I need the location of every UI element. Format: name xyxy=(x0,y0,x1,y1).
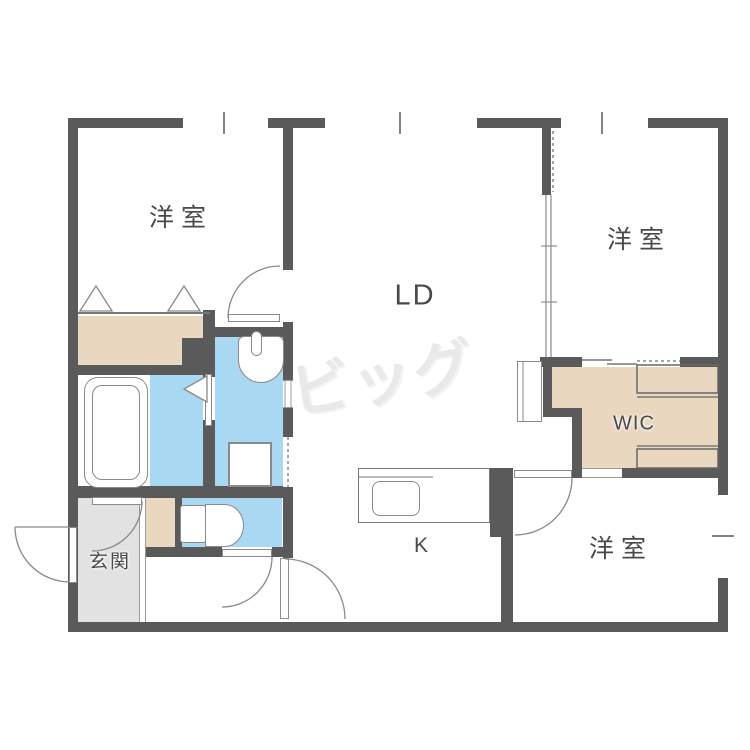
label-entrance: 玄関 xyxy=(89,547,131,574)
wic-shelf-top xyxy=(637,365,718,393)
bathroom-door-triangle xyxy=(184,376,207,402)
label-bedroom-se: 洋室 xyxy=(589,529,653,565)
door-arc-bedroom-se xyxy=(515,478,572,535)
closet-bifold-triangle-2 xyxy=(168,286,200,311)
door-arc-front-door xyxy=(15,527,70,582)
door-arc-toilet xyxy=(222,557,272,607)
door-arc-bedroom-nw xyxy=(228,266,280,318)
label-living-dining: LD xyxy=(394,280,435,313)
label-bedroom-ne: 洋室 xyxy=(607,220,671,256)
wic-shelf-bottom xyxy=(637,449,718,468)
floor-plan: ビッグ 洋室 LD 洋室 WIC 洋室 K 玄関 xyxy=(0,0,750,750)
door-arc-entrance-hall xyxy=(92,501,142,551)
closet-bifold-triangle-1 xyxy=(80,286,112,311)
label-kitchen: K xyxy=(414,534,428,558)
door-arc-hall-ldk xyxy=(285,559,345,619)
label-wic: WIC xyxy=(613,413,655,436)
label-bedroom-nw: 洋室 xyxy=(149,198,213,234)
